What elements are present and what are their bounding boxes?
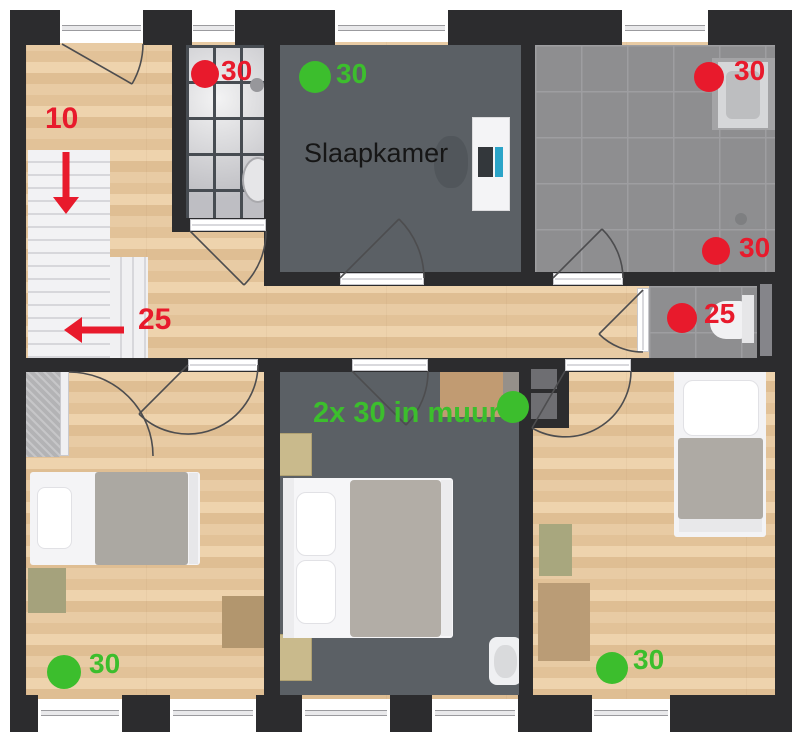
rug <box>28 568 66 613</box>
window <box>192 14 235 42</box>
wall <box>264 45 280 286</box>
wall <box>518 695 592 732</box>
bed-left-duvet <box>95 472 188 565</box>
window <box>170 699 256 727</box>
marker-label-bedroom-left: 30 <box>89 650 120 678</box>
pillow <box>683 380 759 436</box>
door-bedroom-right <box>565 359 631 371</box>
door-bedroom-left <box>188 359 258 371</box>
wall <box>143 10 192 45</box>
wall <box>10 10 26 732</box>
marker-dot-bathroom-right <box>694 62 724 92</box>
shower-knob <box>735 213 747 225</box>
room-label-slaapkamer: Slaapkamer <box>304 140 448 167</box>
desk-left-bedroom <box>222 596 266 648</box>
wall <box>775 10 792 732</box>
monitor-accent <box>495 147 503 177</box>
door-bathroom <box>553 273 623 285</box>
marker-label-bathroom-right: 30 <box>734 57 765 85</box>
washbasin-bowl <box>494 645 517 678</box>
desk-right-bedroom <box>538 583 590 661</box>
bed-center-headboard <box>283 478 294 638</box>
wall <box>235 10 335 45</box>
marker-label-bathroom-shower: 30 <box>739 234 770 262</box>
marker-dot-bathroom-shower <box>702 237 730 265</box>
duct <box>760 284 772 356</box>
marker-dot-wall-note <box>497 391 529 423</box>
nightstand <box>279 433 312 476</box>
bed-center-footboard <box>441 480 452 636</box>
rug <box>539 524 572 576</box>
bed-right-footboard <box>679 519 762 532</box>
window <box>38 699 122 727</box>
door-toilet <box>637 288 649 352</box>
wall <box>264 362 280 695</box>
window <box>302 699 390 727</box>
wall <box>172 45 186 232</box>
marker-dot-bedroom-right <box>596 652 628 684</box>
bed-left-footboard <box>189 473 198 564</box>
hall-note-label: 25 <box>138 305 171 335</box>
marker-label-toilet: 25 <box>704 300 735 328</box>
wall <box>390 695 432 732</box>
marker-label-shower: 30 <box>221 57 252 85</box>
closet-door <box>60 369 69 456</box>
marker-dot-shower <box>191 60 219 88</box>
toilet-tank <box>742 295 754 343</box>
marker-dot-bedroom-top <box>299 61 331 93</box>
chimney-flue <box>531 393 557 419</box>
marker-label-bedroom-top: 30 <box>336 60 367 88</box>
pillow <box>296 492 336 556</box>
marker-dot-bedroom-left <box>47 655 81 689</box>
bed-right-duvet <box>678 438 763 519</box>
wall <box>670 695 792 732</box>
pillow <box>296 560 336 624</box>
wall <box>448 10 622 45</box>
wall <box>521 45 535 286</box>
chimney-flue <box>531 369 557 389</box>
bed-center-duvet <box>350 480 441 637</box>
floor-plan: Slaapkamer 10 25 30 30 30 30 25 2x 30 in… <box>0 0 800 747</box>
window <box>432 699 518 727</box>
nightstand <box>279 634 312 681</box>
door-bedroom-center <box>352 359 428 371</box>
wall <box>256 695 302 732</box>
stairs-note-label: 10 <box>45 104 78 134</box>
monitor <box>478 147 493 177</box>
closet <box>26 368 60 457</box>
marker-label-bedroom-right: 30 <box>633 646 664 674</box>
door-shower <box>190 219 266 231</box>
marker-dot-toilet <box>667 303 697 333</box>
window <box>60 12 143 43</box>
wall <box>122 695 170 732</box>
window <box>592 699 670 727</box>
staircase <box>28 150 110 360</box>
window <box>335 14 448 42</box>
pillow <box>37 487 72 549</box>
wall-note-label: 2x 30 in muur <box>313 399 500 428</box>
door-bedroom-top <box>340 273 424 285</box>
window <box>622 14 708 42</box>
